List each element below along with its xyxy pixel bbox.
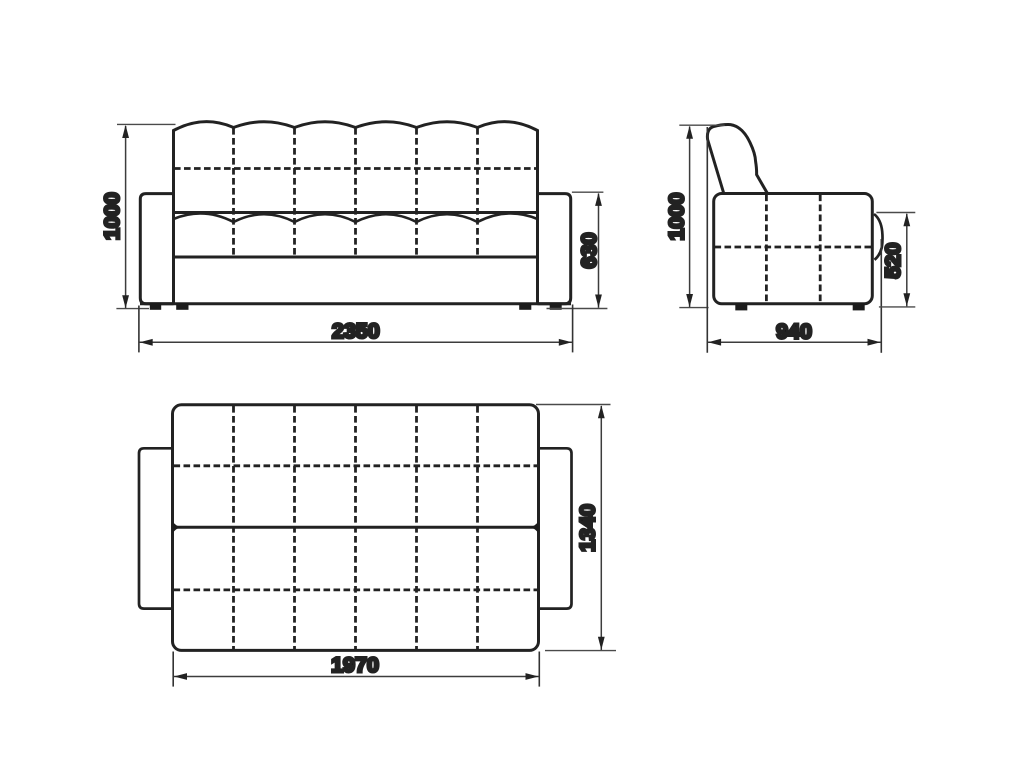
svg-text:1000: 1000 xyxy=(100,192,124,240)
svg-text:940: 940 xyxy=(776,319,812,343)
svg-text:1000: 1000 xyxy=(665,193,689,241)
svg-text:2350: 2350 xyxy=(332,319,380,343)
svg-text:520: 520 xyxy=(881,243,905,279)
svg-text:1970: 1970 xyxy=(331,653,379,677)
svg-text:630: 630 xyxy=(577,233,601,269)
svg-text:1340: 1340 xyxy=(576,504,600,552)
